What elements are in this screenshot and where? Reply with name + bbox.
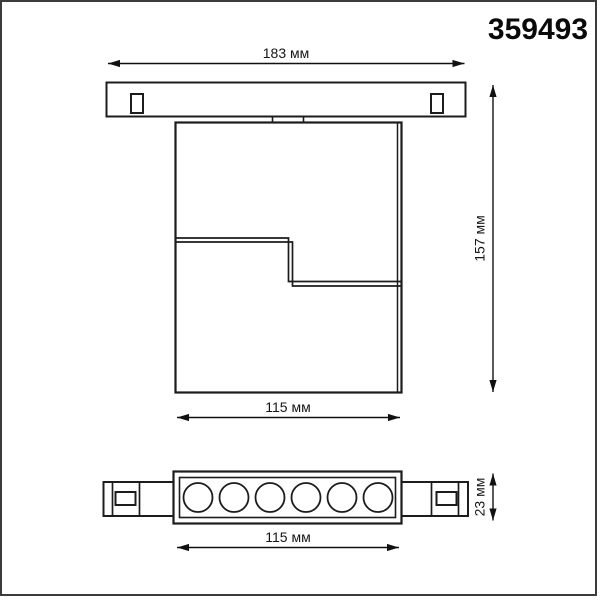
technical-drawing-page: 359493 183 мм 157 мм 11 <box>0 0 600 600</box>
dim-label-module-width: 115 мм <box>265 529 310 545</box>
dim-label-module-height: 23 мм <box>472 478 488 517</box>
fixture-front-view <box>176 123 402 393</box>
lens-circle <box>184 483 213 512</box>
mount-clip-left <box>116 492 136 505</box>
mount-slot-left <box>131 94 143 113</box>
dim-track-width: 183 мм <box>108 45 465 64</box>
lens-circle <box>292 483 321 512</box>
dim-module-width: 115 мм <box>177 529 399 548</box>
dim-label-track-width: 183 мм <box>263 45 310 61</box>
track-top-view <box>107 83 466 123</box>
dim-fixture-height: 157 мм <box>472 85 494 392</box>
fixture-bottom-view <box>104 472 469 524</box>
dim-body-width: 115 мм <box>177 399 400 418</box>
lens-circle <box>256 483 285 512</box>
mount-slot-right <box>431 94 443 113</box>
lens-circle <box>364 483 393 512</box>
lens-circle <box>328 483 357 512</box>
track-outline <box>107 83 466 117</box>
drawing-canvas: 359493 183 мм 157 мм 11 <box>0 0 600 600</box>
article-number: 359493 <box>488 13 588 46</box>
mount-clip-right <box>437 492 457 505</box>
dim-label-body-width: 115 мм <box>265 399 310 415</box>
dim-label-fixture-height: 157 мм <box>472 215 488 262</box>
lens-circle <box>220 483 249 512</box>
dim-module-height: 23 мм <box>472 474 494 521</box>
